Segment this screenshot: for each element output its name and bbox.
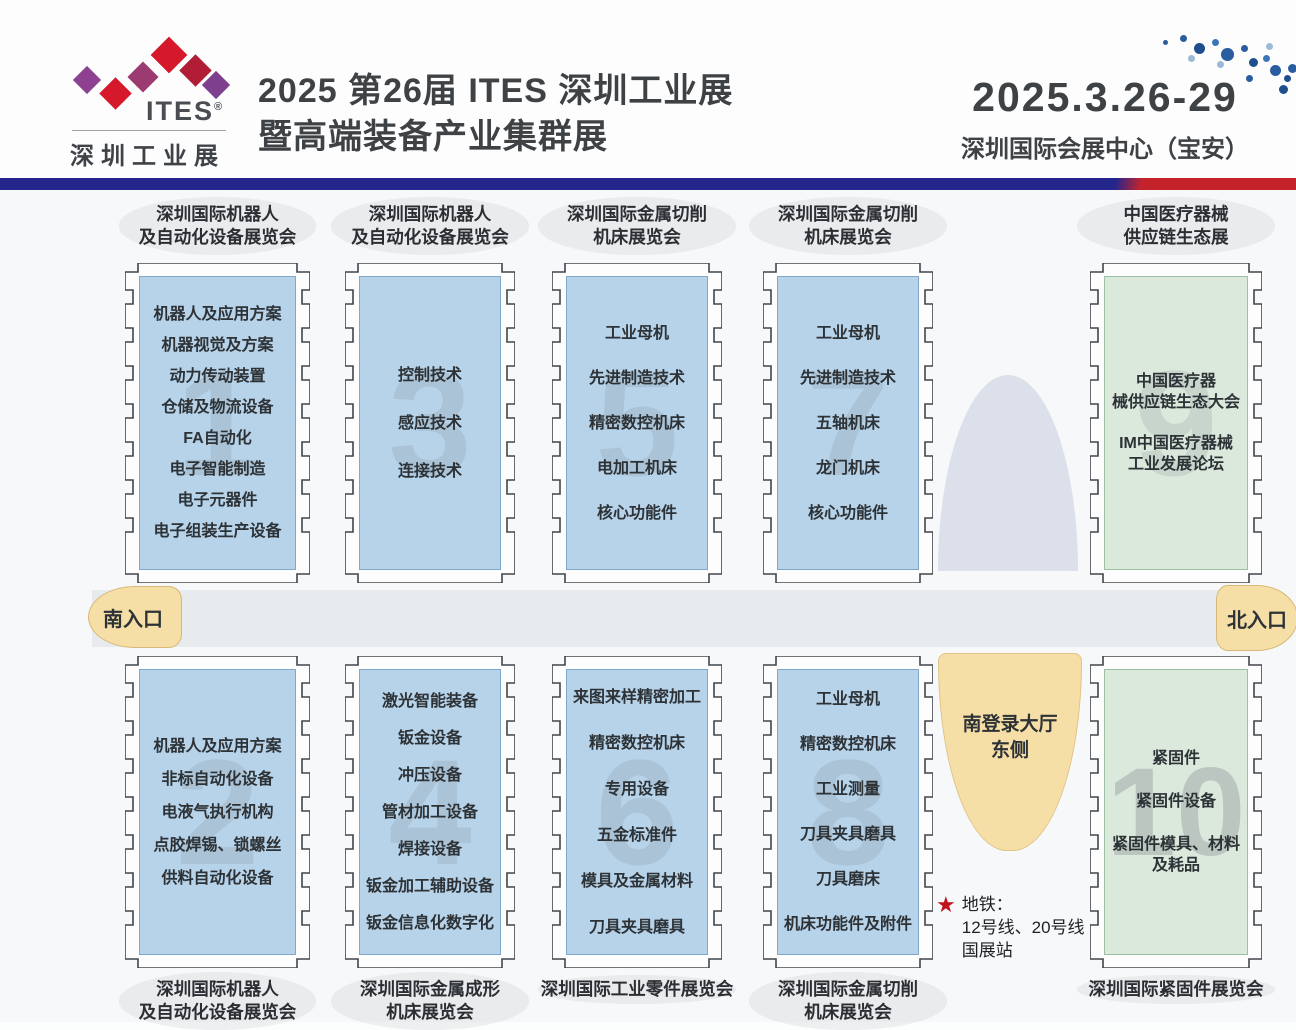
hall-item: 管材加工设备 [382,802,478,823]
hall-10-area: 10 紧固件紧固件设备紧固件模具、材料 及耗品 [1104,669,1248,955]
hall-item: 机器人及应用方案 [153,736,281,757]
hall-2: 深圳国际机器人 及自动化设备展览会 2 机器人及应用方案非标自动化设备电液气执行… [125,656,310,968]
hall-9: 中国医疗器械 供应链生态展 9 中国医疗器 械供应链生态大会IM中国医疗器械 工… [1090,263,1262,583]
hall-item: 激光智能装备 [382,691,478,712]
south-lobby-label: 南登录大厅 东侧 [962,712,1057,764]
hall-6-area: 6 来图来样精密加工精密数控机床专用设备五金标准件模具及金属材料刀具夹具磨具 [566,669,708,955]
metro-note-text: 地铁： 12号线、20号线 国展站 [962,893,1085,962]
floorplan-map: 南登录大厅 东侧 南入口 北入口 ★ 地铁： 12号线、20号线 国展站 深圳国… [0,190,1296,1022]
hall-3: 深圳国际机器人 及自动化设备展览会 3 控制技术感应技术连接技术 [345,263,515,583]
hall-5-area: 5 工业母机先进制造技术精密数控机床电加工机床核心功能件 [566,276,708,570]
exhibition-floorplan-poster: ITES® 深圳工业展 2025 第26届 ITES 深圳工业展 暨高端装备产业… [0,0,1296,1022]
hall-1-items: 机器人及应用方案机器视觉及方案动力传动装置仓储及物流设备FA自动化电子智能制造电… [140,277,295,569]
hall-item: 五金标准件 [597,825,677,846]
hall-6: 深圳国际工业零件展览会 6 来图来样精密加工精密数控机床专用设备五金标准件模具及… [552,656,722,968]
south-entrance: 南入口 [88,586,182,648]
hall-1-area: 1 机器人及应用方案机器视觉及方案动力传动装置仓储及物流设备FA自动化电子智能制… [139,276,296,570]
hall-4-area: 4 激光智能装备钣金设备冲压设备管材加工设备焊接设备钣金加工辅助设备钣金信息化数… [359,669,501,955]
hall-4: 深圳国际金属成形 机床展览会 4 激光智能装备钣金设备冲压设备管材加工设备焊接设… [345,656,515,968]
hall-7-area: 7 工业母机先进制造技术五轴机床龙门机床核心功能件 [777,276,919,570]
hall-3-items: 控制技术感应技术连接技术 [360,277,500,569]
hall-item: 电子智能制造 [169,459,265,480]
hall-item: 动力传动装置 [169,366,265,387]
hall-item: 非标自动化设备 [161,769,273,790]
hall-item: 工业母机 [816,323,880,344]
logo-brand: ITES® [146,96,224,127]
hall-2-area: 2 机器人及应用方案非标自动化设备电液气执行机构点胶焊锡、锁螺丝供料自动化设备 [139,669,296,955]
hall-10-label: 深圳国际紧固件展览会 [1046,978,1296,1001]
hall-item: 机床功能件及附件 [784,914,912,935]
hall-8-label: 深圳国际金属切削 机床展览会 [718,978,978,1024]
hall-9-items: 中国医疗器 械供应链生态大会IM中国医疗器械 工业发展论坛 [1105,277,1247,569]
hall-4-items: 激光智能装备钣金设备冲压设备管材加工设备焊接设备钣金加工辅助设备钣金信息化数字化 [360,670,500,954]
hall-5: 深圳国际金属切削 机床展览会 5 工业母机先进制造技术精密数控机床电加工机床核心… [552,263,722,583]
star-icon: ★ [936,893,956,917]
hall-item: 仓储及物流设备 [161,397,273,418]
hall-item: 电液气执行机构 [161,802,273,823]
hall-9-label: 中国医疗器械 供应链生态展 [1046,203,1296,249]
hall-item: 电子组装生产设备 [153,521,281,542]
hall-item: 钣金设备 [398,728,462,749]
hall-item: 精密数控机床 [589,733,685,754]
hall-item: FA自动化 [183,428,251,449]
hall-item: 感应技术 [398,413,462,434]
hall-item: 供料自动化设备 [161,868,273,889]
hall-item: 控制技术 [398,365,462,386]
hall-item: 点胶焊锡、锁螺丝 [153,835,281,856]
hall-item: 先进制造技术 [589,368,685,389]
header: ITES® 深圳工业展 2025 第26届 ITES 深圳工业展 暨高端装备产业… [0,0,1296,178]
central-corridor [92,590,1218,647]
registered-mark: ® [214,101,224,113]
hall-2-items: 机器人及应用方案非标自动化设备电液气执行机构点胶焊锡、锁螺丝供料自动化设备 [140,670,295,954]
hall-5-items: 工业母机先进制造技术精密数控机床电加工机床核心功能件 [567,277,707,569]
hall-7: 深圳国际金属切削 机床展览会 7 工业母机先进制造技术五轴机床龙门机床核心功能件 [763,263,933,583]
hall-8-area: 8 工业母机精密数控机床工业测量刀具夹具磨具刀具磨床机床功能件及附件 [777,669,919,955]
hall-item: 刀具磨床 [816,869,880,890]
hall-item: 核心功能件 [808,503,888,524]
hall-item: 龙门机床 [816,458,880,479]
hall-item: 电子元器件 [177,490,257,511]
event-info: 2025.3.26-29 深圳国际会展中心（宝安） [935,74,1275,164]
hall-item: 电加工机床 [597,458,677,479]
hall-item: 紧固件模具、材料 及耗品 [1112,834,1240,876]
hall-item: 刀具夹具磨具 [800,824,896,845]
hall-7-items: 工业母机先进制造技术五轴机床龙门机床核心功能件 [778,277,918,569]
hall-7-label: 深圳国际金属切削 机床展览会 [718,203,978,249]
ites-logo: ITES® 深圳工业展 [68,34,230,166]
hall-item: 精密数控机床 [800,734,896,755]
hall-item: 连接技术 [398,461,462,482]
hall-8-items: 工业母机精密数控机床工业测量刀具夹具磨具刀具磨床机床功能件及附件 [778,670,918,954]
logo-subtitle: 深圳工业展 [70,136,230,171]
hall-3-area: 3 控制技术感应技术连接技术 [359,276,501,570]
hall-8: 深圳国际金属切削 机床展览会 8 工业母机精密数控机床工业测量刀具夹具磨具刀具磨… [763,656,933,968]
event-date: 2025.3.26-29 [935,74,1275,121]
south-lobby-east: 南登录大厅 东侧 [938,653,1082,851]
hall-6-items: 来图来样精密加工精密数控机床专用设备五金标准件模具及金属材料刀具夹具磨具 [567,670,707,954]
dots-decoration-icon [1163,40,1168,45]
hall-item: 紧固件 [1152,748,1200,769]
hall-item: 工业测量 [816,779,880,800]
hall-item: 工业母机 [605,323,669,344]
hall-item: 核心功能件 [597,503,677,524]
page-title: 2025 第26届 ITES 深圳工业展 暨高端装备产业集群展 [258,68,733,160]
hall-10: 深圳国际紧固件展览会 10 紧固件紧固件设备紧固件模具、材料 及耗品 [1090,656,1262,968]
logo-divider [72,130,226,131]
hall-1: 深圳国际机器人 及自动化设备展览会 1 机器人及应用方案机器视觉及方案动力传动装… [125,263,310,583]
hall-item: 精密数控机床 [589,413,685,434]
hall-item: 中国医疗器 械供应链生态大会 [1112,371,1240,413]
event-venue: 深圳国际会展中心（宝安） [935,129,1275,164]
hall-item: 钣金加工辅助设备 [366,876,494,897]
accent-bar [0,178,1296,190]
hall-item: 机器人及应用方案 [153,304,281,325]
hall-item: 紧固件设备 [1136,791,1216,812]
hall-item: IM中国医疗器械 工业发展论坛 [1119,433,1233,475]
hall-10-items: 紧固件紧固件设备紧固件模具、材料 及耗品 [1105,670,1247,954]
hall-item: 机器视觉及方案 [161,335,273,356]
hall-item: 五轴机床 [816,413,880,434]
metro-note: ★ 地铁： 12号线、20号线 国展站 [936,893,1085,962]
hall-item: 工业母机 [816,689,880,710]
north-entrance: 北入口 [1216,585,1296,651]
hall-item: 来图来样精密加工 [573,687,701,708]
title-line1: 2025 第26届 ITES 深圳工业展 [258,68,733,114]
hall-item: 刀具夹具磨具 [589,917,685,938]
dome-structure [938,375,1078,571]
hall-item: 焊接设备 [398,839,462,860]
hall-item: 先进制造技术 [800,368,896,389]
title-line2: 暨高端装备产业集群展 [258,114,733,160]
hall-9-area: 9 中国医疗器 械供应链生态大会IM中国医疗器械 工业发展论坛 [1104,276,1248,570]
hall-item: 钣金信息化数字化 [366,913,494,934]
hall-item: 专用设备 [605,779,669,800]
hall-item: 冲压设备 [398,765,462,786]
hall-item: 模具及金属材料 [581,871,693,892]
